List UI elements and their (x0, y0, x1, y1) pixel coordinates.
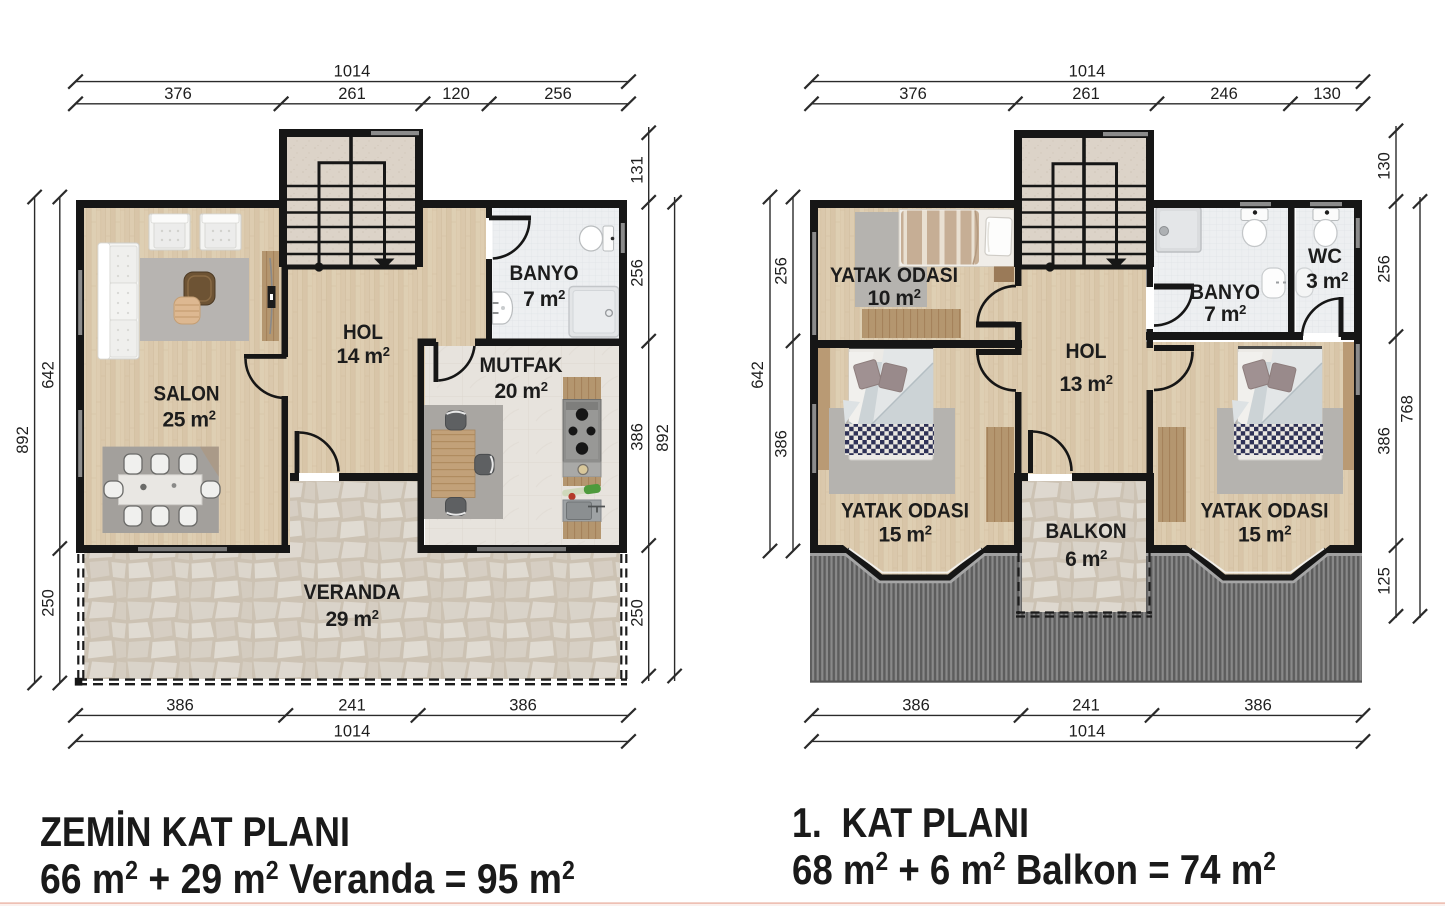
svg-text:386: 386 (902, 697, 930, 715)
svg-text:MUTFAK: MUTFAK (480, 354, 563, 377)
svg-text:642: 642 (749, 361, 767, 389)
svg-text:1014: 1014 (1069, 63, 1106, 81)
svg-text:130: 130 (1376, 152, 1394, 180)
svg-text:892: 892 (14, 426, 32, 454)
svg-text:HOL: HOL (343, 321, 383, 344)
svg-text:25 m2: 25 m2 (162, 408, 215, 432)
svg-text:241: 241 (1072, 697, 1100, 715)
svg-text:66 m2 + 29 m2 Veranda = 95 m2: 66 m2 + 29 m2 Veranda = 95 m2 (40, 856, 575, 902)
svg-text:261: 261 (1072, 85, 1100, 103)
svg-text:WC: WC (1308, 245, 1342, 268)
svg-text:130: 130 (1313, 85, 1341, 103)
svg-text:20 m2: 20 m2 (494, 379, 547, 403)
svg-text:892: 892 (654, 424, 672, 452)
svg-text:642: 642 (40, 361, 58, 389)
svg-text:10 m2: 10 m2 (867, 286, 920, 310)
svg-text:256: 256 (629, 259, 647, 287)
svg-text:376: 376 (899, 85, 927, 103)
svg-text:250: 250 (629, 599, 647, 627)
svg-text:246: 246 (1210, 85, 1238, 103)
svg-text:386: 386 (1376, 427, 1394, 455)
svg-text:386: 386 (1244, 697, 1272, 715)
svg-text:386: 386 (629, 423, 647, 451)
svg-text:BALKON: BALKON (1046, 520, 1127, 543)
svg-text:BANYO: BANYO (1190, 281, 1260, 304)
svg-text:768: 768 (1399, 395, 1417, 423)
svg-text:376: 376 (164, 85, 192, 103)
svg-text:1014: 1014 (1069, 723, 1106, 741)
svg-text:131: 131 (629, 156, 647, 184)
svg-text:256: 256 (544, 85, 572, 103)
svg-text:256: 256 (1376, 255, 1394, 283)
svg-text:HOL: HOL (1066, 340, 1107, 363)
svg-text:256: 256 (773, 257, 791, 285)
svg-text:1. KAT PLANI: 1. KAT PLANI (792, 799, 1029, 846)
svg-text:125: 125 (1376, 567, 1394, 595)
svg-text:261: 261 (338, 85, 366, 103)
svg-text:386: 386 (773, 430, 791, 458)
svg-text:BANYO: BANYO (510, 262, 579, 285)
svg-text:386: 386 (166, 697, 194, 715)
svg-text:250: 250 (40, 589, 58, 617)
svg-text:YATAK ODASI: YATAK ODASI (830, 264, 958, 287)
svg-text:120: 120 (442, 85, 470, 103)
svg-text:YATAK ODASI: YATAK ODASI (1201, 500, 1329, 523)
svg-text:1014: 1014 (334, 723, 371, 741)
svg-text:14 m2: 14 m2 (336, 344, 389, 368)
svg-text:SALON: SALON (154, 383, 220, 406)
svg-text:15 m2: 15 m2 (1238, 523, 1291, 547)
svg-text:YATAK ODASI: YATAK ODASI (841, 500, 969, 523)
svg-text:1014: 1014 (334, 63, 371, 81)
svg-text:ZEMİN KAT PLANI: ZEMİN KAT PLANI (40, 808, 350, 855)
svg-text:241: 241 (338, 697, 366, 715)
svg-text:68 m2 + 6 m2 Balkon = 74 m2: 68 m2 + 6 m2 Balkon = 74 m2 (792, 847, 1276, 894)
svg-text:VERANDA: VERANDA (304, 581, 401, 604)
svg-text:29 m2: 29 m2 (325, 607, 378, 631)
svg-text:15 m2: 15 m2 (878, 523, 931, 547)
svg-text:386: 386 (509, 697, 537, 715)
svg-text:13 m2: 13 m2 (1059, 372, 1112, 396)
